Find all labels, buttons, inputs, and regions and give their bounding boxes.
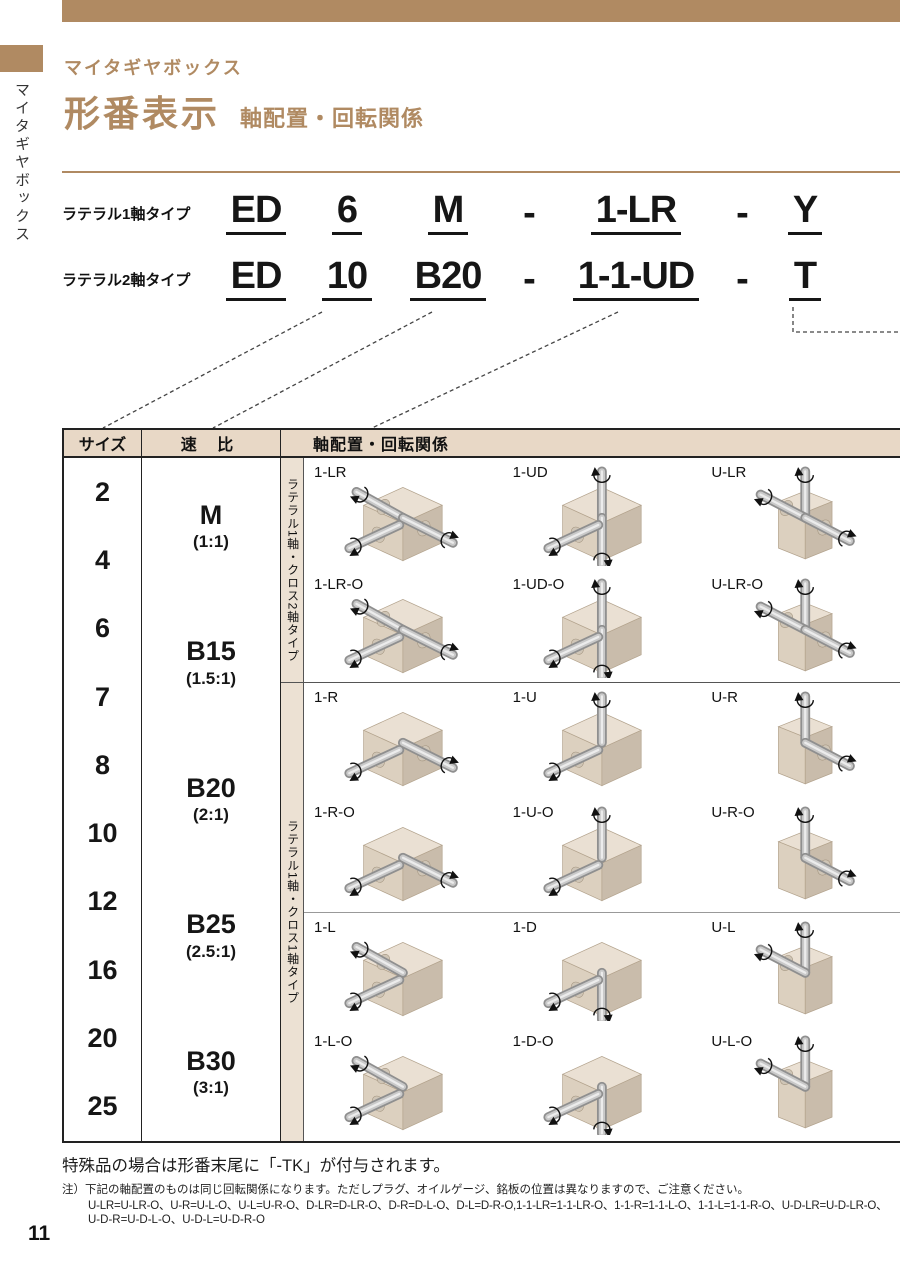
diagram-row: 1-L-O1-D-OU-L-O xyxy=(304,1027,900,1141)
arrangement-section-2: ラテラル1軸・クロス1軸タイプ1-R1-UU-R1-R-O1-U-OU-R-O1… xyxy=(281,682,900,1141)
diagram-cell-U-L: U-L xyxy=(701,913,900,1027)
diagram-row: 1-R-O1-U-OU-R-O xyxy=(304,798,900,912)
gearbox-diagram-U-LR xyxy=(707,466,891,566)
gearbox-diagram-1-D xyxy=(509,921,693,1021)
size-value: 7 xyxy=(95,682,110,713)
size-value: 16 xyxy=(87,955,117,986)
diagram-cell-1-LR: 1-LR xyxy=(304,458,503,570)
type-strip: ラテラル1軸・クロス1軸タイプ xyxy=(281,683,304,1141)
size-value: 4 xyxy=(95,545,110,576)
gearbox-diagram-1-U-O xyxy=(509,806,693,906)
page-subtitle: 軸配置・回転関係 xyxy=(240,101,424,133)
top-accent-bar xyxy=(62,0,900,22)
gearbox-diagram-1-LR xyxy=(310,466,494,566)
diagram-row: 1-LR-O1-UD-OU-LR-O xyxy=(304,570,900,682)
diagram-cell-1-U: 1-U xyxy=(503,683,702,797)
diagram-cell-U-R: U-R xyxy=(701,683,900,797)
type-strip: ラテラル1軸・クロス2軸タイプ xyxy=(281,458,304,682)
model-segment: 6 xyxy=(332,191,362,235)
gearbox-diagram-1-UD-O xyxy=(509,578,693,678)
diagram-row: 1-R1-UU-R xyxy=(304,683,900,797)
size-value: 25 xyxy=(87,1091,117,1122)
page-number: 11 xyxy=(28,1222,50,1246)
ratio-code: B25 xyxy=(186,910,236,938)
ratio-code: B20 xyxy=(186,774,236,802)
model-separator: - xyxy=(523,192,536,235)
title-block: マイタギヤボックス 形番表示 軸配置・回転関係 xyxy=(64,54,424,137)
arrangement-area: ラテラル1軸・クロス2軸タイプ1-LR1-UDU-LR1-LR-O1-UD-OU… xyxy=(281,458,900,1141)
gearbox-diagram-U-L-O xyxy=(707,1035,891,1135)
size-value: 8 xyxy=(95,750,110,781)
size-value: 20 xyxy=(87,1023,117,1054)
model-segment: Y xyxy=(788,191,822,235)
size-value: 2 xyxy=(95,477,110,508)
diagram-row: 1-LR1-UDU-LR xyxy=(304,458,900,570)
ratio-entry: B20(2:1) xyxy=(186,774,236,825)
gearbox-diagram-1-L xyxy=(310,921,494,1021)
gearbox-diagram-1-D-O xyxy=(509,1035,693,1135)
diagram-grid: 1-LR1-UDU-LR1-LR-O1-UD-OU-LR-O xyxy=(304,458,900,682)
table-header-size: サイズ xyxy=(62,430,142,456)
model-segment: ED xyxy=(226,191,287,235)
ratio-code: B15 xyxy=(186,637,236,665)
ratio-entry: B25(2.5:1) xyxy=(186,910,236,961)
model-row-label: ラテラル1軸タイプ xyxy=(62,203,212,224)
special-note: 特殊品の場合は形番末尾に「-TK」が付与されます。 xyxy=(62,1152,450,1176)
table-header-ratio: 速 比 xyxy=(142,430,281,456)
size-column: 246781012162025 xyxy=(64,458,142,1141)
ratio-column: M(1:1)B15(1.5:1)B20(2:1)B25(2.5:1)B30(3:… xyxy=(142,458,281,1141)
model-row-label: ラテラル2軸タイプ xyxy=(62,269,212,290)
arrangement-section-1: ラテラル1軸・クロス2軸タイプ1-LR1-UDU-LR1-LR-O1-UD-OU… xyxy=(281,458,900,682)
diagram-cell-1-D: 1-D xyxy=(503,913,702,1027)
size-value: 12 xyxy=(87,886,117,917)
gearbox-diagram-1-R-O xyxy=(310,806,494,906)
footnote-heading: 注）下記の軸配置のものは同じ回転関係になります。ただしプラグ、オイルゲージ、銘板… xyxy=(62,1181,749,1197)
diagram-group: 1-LR1-UDU-LR1-LR-O1-UD-OU-LR-O xyxy=(304,458,900,682)
diagram-cell-1-L: 1-L xyxy=(304,913,503,1027)
title-rule xyxy=(62,171,900,173)
gearbox-diagram-U-R-O xyxy=(707,806,891,906)
gearbox-diagram-U-LR-O xyxy=(707,578,891,678)
ratio-entry: M(1:1) xyxy=(193,501,229,552)
model-separator: - xyxy=(736,192,749,235)
diagram-cell-U-L-O: U-L-O xyxy=(701,1027,900,1141)
side-tab-marker xyxy=(0,45,43,72)
page-title: 形番表示 xyxy=(64,85,220,137)
diagram-group: 1-L1-DU-L1-L-O1-D-OU-L-O xyxy=(304,912,900,1141)
diagram-group: 1-R1-UU-R1-R-O1-U-OU-R-O xyxy=(304,683,900,911)
ratio-value: (2.5:1) xyxy=(186,942,236,962)
diagram-cell-1-R: 1-R xyxy=(304,683,503,797)
diagram-cell-1-LR-O: 1-LR-O xyxy=(304,570,503,682)
diagram-cell-1-R-O: 1-R-O xyxy=(304,798,503,912)
ratio-value: (3:1) xyxy=(186,1078,236,1098)
diagram-row: 1-L1-DU-L xyxy=(304,913,900,1027)
diagram-cell-1-L-O: 1-L-O xyxy=(304,1027,503,1141)
size-value: 6 xyxy=(95,613,110,644)
table-body: 246781012162025 M(1:1)B15(1.5:1)B20(2:1)… xyxy=(62,458,900,1143)
gearbox-diagram-1-UD xyxy=(509,466,693,566)
gearbox-diagram-1-L-O xyxy=(310,1035,494,1135)
ratio-entry: B15(1.5:1) xyxy=(186,637,236,688)
footnote-line-2: U-D-R=U-D-L-O、U-D-L=U-D-R-O xyxy=(88,1211,265,1227)
gearbox-diagram-1-LR-O xyxy=(310,578,494,678)
ratio-value: (1.5:1) xyxy=(186,669,236,689)
gearbox-diagram-1-U xyxy=(509,691,693,791)
model-segment: 1-LR xyxy=(591,191,681,235)
title-line: 形番表示 軸配置・回転関係 xyxy=(64,85,424,137)
diagram-cell-U-R-O: U-R-O xyxy=(701,798,900,912)
size-value: 10 xyxy=(87,818,117,849)
type-strip-label: ラテラル1軸・クロス2軸タイプ xyxy=(285,478,298,662)
ratio-code: M xyxy=(193,501,229,529)
type-strip-label: ラテラル1軸・クロス1軸タイプ xyxy=(285,820,298,1004)
diagram-cell-1-U-O: 1-U-O xyxy=(503,798,702,912)
diagram-cell-1-D-O: 1-D-O xyxy=(503,1027,702,1141)
gearbox-diagram-1-R xyxy=(310,691,494,791)
diagram-grid: 1-R1-UU-R1-R-O1-U-OU-R-O1-L1-DU-L1-L-O1-… xyxy=(304,683,900,1141)
ratio-entry: B30(3:1) xyxy=(186,1047,236,1098)
dashed-connector-lines xyxy=(0,295,900,430)
model-row-1: ラテラル1軸タイプED6M-1-LR-Y xyxy=(62,190,900,236)
catalog-page: { "colors": { "accent_brown": "#b08a62",… xyxy=(0,0,900,1272)
ratio-code: B30 xyxy=(186,1047,236,1075)
model-segment: M xyxy=(428,191,469,235)
category-title: マイタギヤボックス xyxy=(64,54,424,80)
diagram-cell-1-UD-O: 1-UD-O xyxy=(503,570,702,682)
side-tab-label: マイタギヤボックス xyxy=(11,82,32,244)
gearbox-diagram-U-L xyxy=(707,921,891,1021)
table-header-arrangement: 軸配置・回転関係 xyxy=(281,430,900,456)
ratio-value: (1:1) xyxy=(193,532,229,552)
diagram-cell-1-UD: 1-UD xyxy=(503,458,702,570)
ratio-value: (2:1) xyxy=(186,805,236,825)
diagram-cell-U-LR: U-LR xyxy=(701,458,900,570)
table-header: サイズ 速 比 軸配置・回転関係 xyxy=(62,428,900,458)
diagram-cell-U-LR-O: U-LR-O xyxy=(701,570,900,682)
gearbox-diagram-U-R xyxy=(707,691,891,791)
